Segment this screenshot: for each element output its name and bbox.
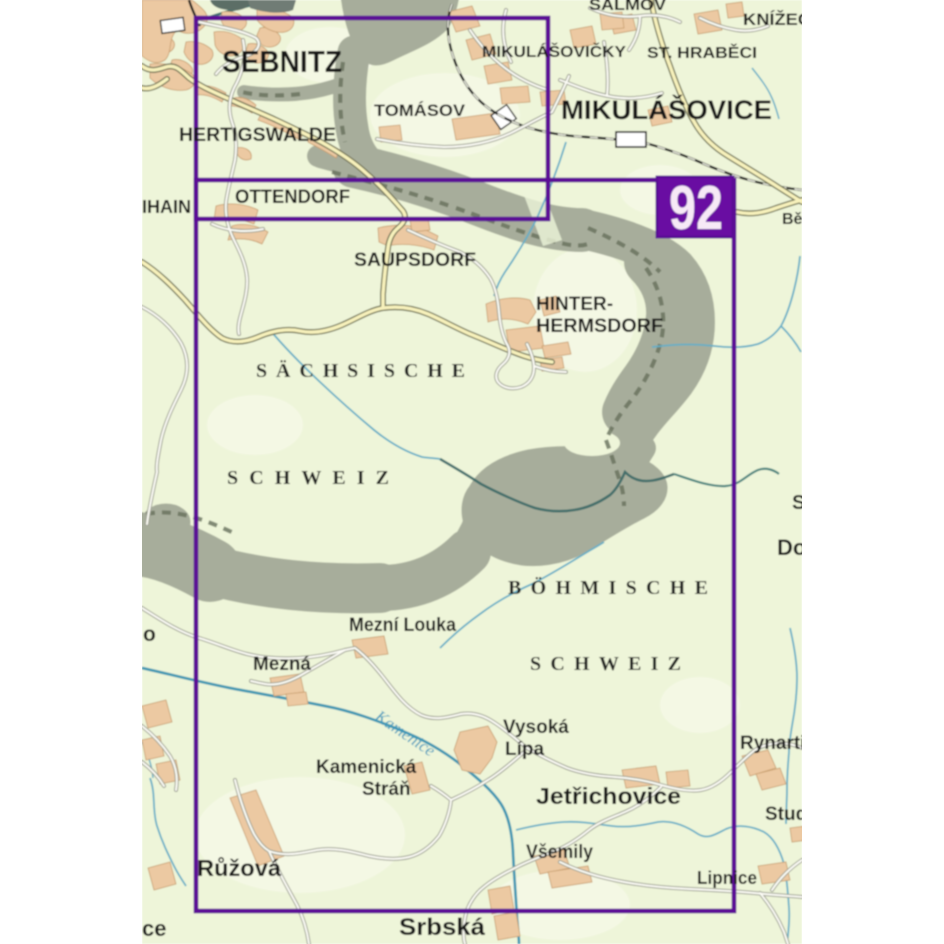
svg-text:SALMOV: SALMOV [589, 0, 666, 14]
svg-text:Stráň: Stráň [362, 779, 411, 800]
svg-text:Lípa: Lípa [505, 739, 544, 760]
svg-text:TOMÁSOV: TOMÁSOV [374, 101, 466, 120]
svg-text:HERMSDORF: HERMSDORF [536, 316, 663, 337]
svg-text:Mezní Louka: Mezní Louka [349, 615, 456, 636]
svg-text:ST. HRABĚCI: ST. HRABĚCI [647, 43, 757, 62]
svg-text:o: o [143, 623, 156, 646]
svg-text:Růžová: Růžová [197, 855, 281, 881]
svg-text:Mezná: Mezná [253, 654, 311, 675]
svg-text:HINTER-: HINTER- [536, 294, 613, 315]
svg-text:92: 92 [669, 174, 723, 243]
svg-text:KNÍŽEC: KNÍŽEC [743, 10, 811, 29]
svg-text:Lipnice: Lipnice [697, 868, 757, 888]
svg-text:Srbská: Srbská [399, 914, 486, 941]
svg-text:ce: ce [142, 916, 166, 941]
svg-text:SCHWEIZ: SCHWEIZ [530, 653, 681, 675]
svg-text:BÖHMISCHE: BÖHMISCHE [508, 576, 708, 599]
svg-text:MIKULÁŠOVICE: MIKULÁŠOVICE [561, 94, 772, 125]
svg-text:IHAIN: IHAIN [142, 197, 191, 217]
svg-text:OTTENDORF: OTTENDORF [235, 187, 350, 208]
svg-text:Všemily: Všemily [526, 842, 593, 863]
svg-text:MIKULÁŠOVIČKY: MIKULÁŠOVIČKY [482, 42, 626, 61]
svg-text:Vysoká: Vysoká [503, 717, 569, 738]
svg-text:Jetřichovice: Jetřichovice [536, 783, 681, 809]
svg-text:HERTIGSWALDE: HERTIGSWALDE [179, 125, 336, 146]
svg-text:SEBNITZ: SEBNITZ [222, 44, 342, 79]
svg-text:SAUPSDORF: SAUPSDORF [354, 250, 476, 271]
svg-text:Kamenická: Kamenická [316, 757, 417, 778]
svg-text:Bě: Bě [782, 211, 803, 228]
